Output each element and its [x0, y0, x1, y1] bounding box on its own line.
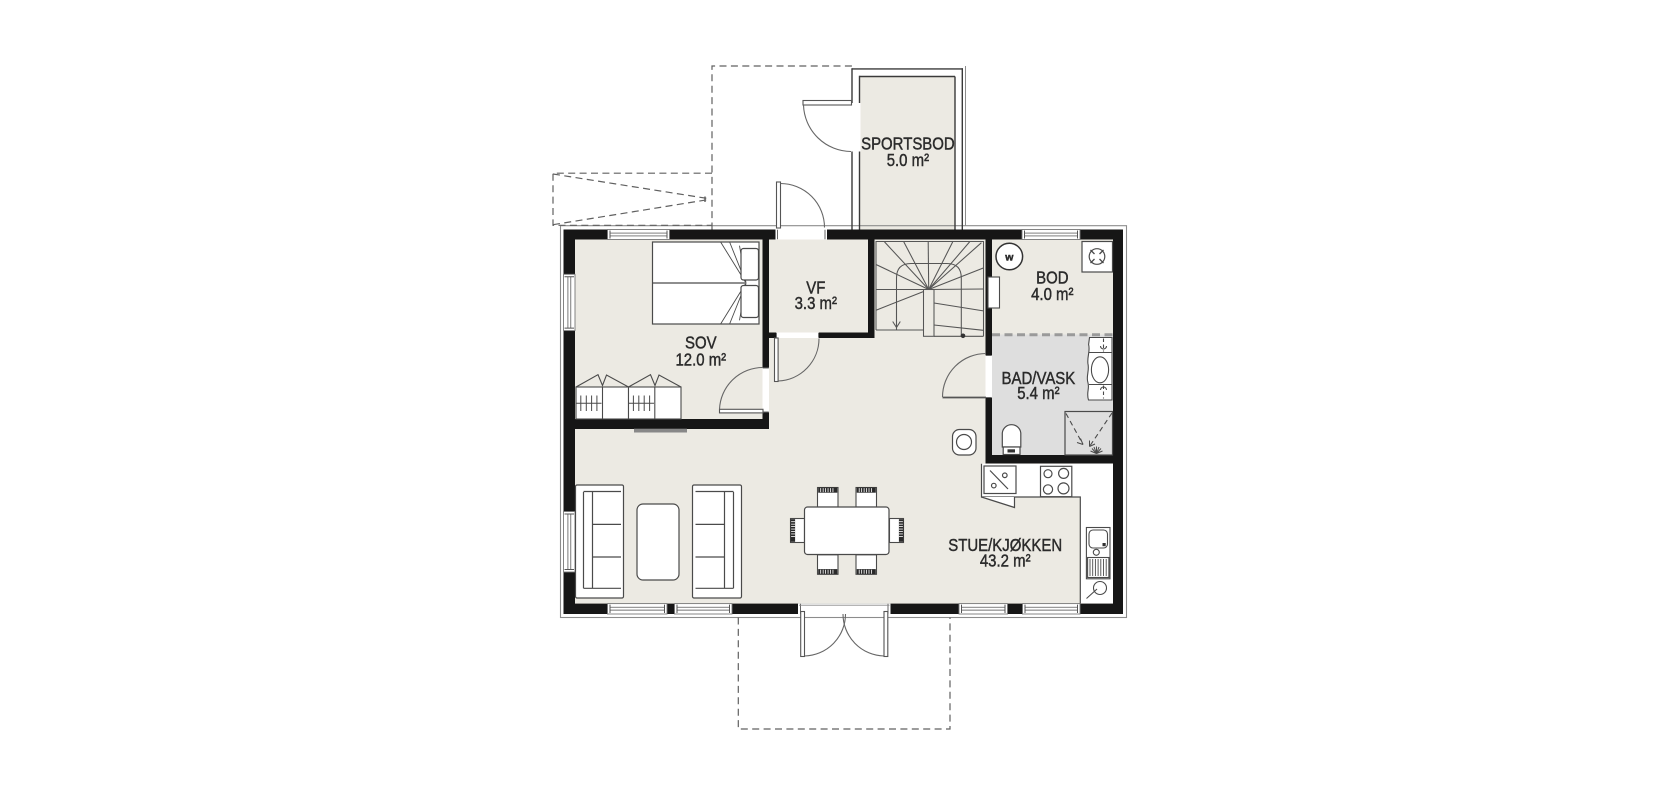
svg-text:5.4 m²: 5.4 m²	[1017, 384, 1060, 403]
svg-text:12.0 m²: 12.0 m²	[675, 350, 726, 369]
svg-text:4.0 m²: 4.0 m²	[1031, 285, 1074, 304]
svg-text:43.2 m²: 43.2 m²	[980, 551, 1031, 570]
svg-text:5.0 m²: 5.0 m²	[887, 151, 930, 170]
svg-text:3.3 m²: 3.3 m²	[795, 294, 838, 313]
svg-text:w: w	[1004, 251, 1014, 263]
